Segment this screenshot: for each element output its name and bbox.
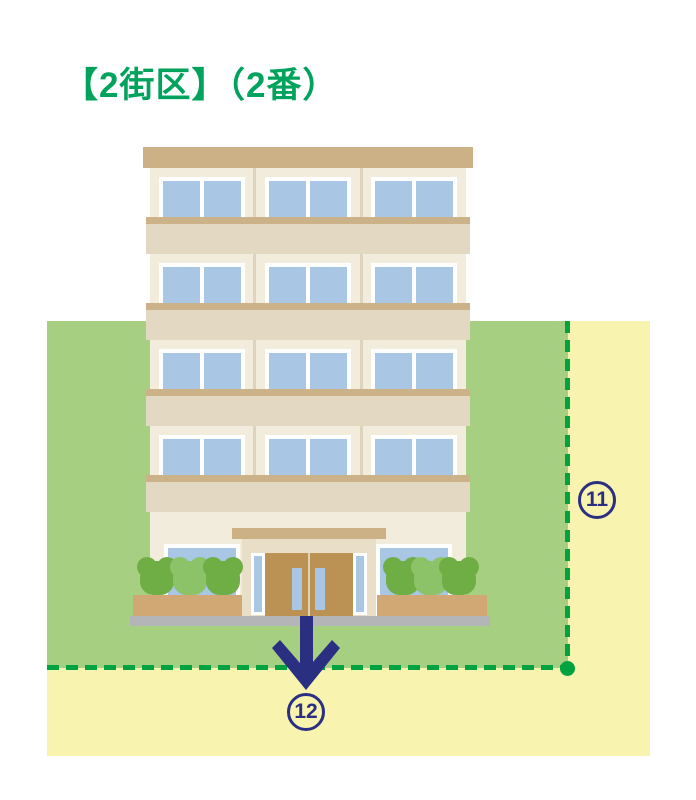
window-icon <box>265 263 351 303</box>
window-icon <box>265 349 351 389</box>
door-glass <box>315 568 325 610</box>
window-icon <box>159 349 245 389</box>
window-icon <box>371 263 457 303</box>
exit-label-12-badge: 12 <box>287 693 325 731</box>
entrance-doors <box>265 553 353 616</box>
bush-icon <box>173 561 207 595</box>
bush-icon <box>206 561 240 595</box>
floor-band <box>146 217 470 254</box>
building-floor-4 <box>150 254 466 303</box>
planter-left <box>133 595 242 616</box>
entrance-canopy <box>232 528 386 539</box>
planter-right <box>377 595 487 616</box>
entrance-door-left <box>265 553 308 616</box>
window-icon <box>159 263 245 303</box>
window-icon <box>265 435 351 475</box>
boundary-corner-dot <box>560 661 575 676</box>
floor-band <box>146 475 470 512</box>
entrance-sidelight-right <box>353 553 367 615</box>
building-floor-2 <box>150 426 466 475</box>
window-icon <box>159 435 245 475</box>
building-floor-5 <box>150 168 466 217</box>
window-icon <box>265 177 351 217</box>
bush-icon <box>442 561 476 595</box>
bush-icon <box>140 561 174 595</box>
entrance-sidelight-left <box>251 553 265 615</box>
building-floor-3 <box>150 340 466 389</box>
page-title: 【2街区】（2番） <box>63 57 338 108</box>
exit-label-12-text: 12 <box>294 700 317 724</box>
boundary-label-11-text: 11 <box>586 488 608 512</box>
floor-band <box>146 303 470 340</box>
building-roof <box>143 147 473 168</box>
entrance-arrow-icon <box>260 610 352 695</box>
boundary-label-11-badge: 11 <box>578 481 616 519</box>
floor-band <box>146 389 470 426</box>
boundary-line-right <box>565 321 570 668</box>
window-icon <box>371 349 457 389</box>
block-diagram: 【2街区】（2番） <box>0 0 696 800</box>
window-icon <box>159 177 245 217</box>
door-glass <box>292 568 302 610</box>
entrance-door-right <box>310 553 353 616</box>
window-icon <box>371 435 457 475</box>
window-icon <box>371 177 457 217</box>
